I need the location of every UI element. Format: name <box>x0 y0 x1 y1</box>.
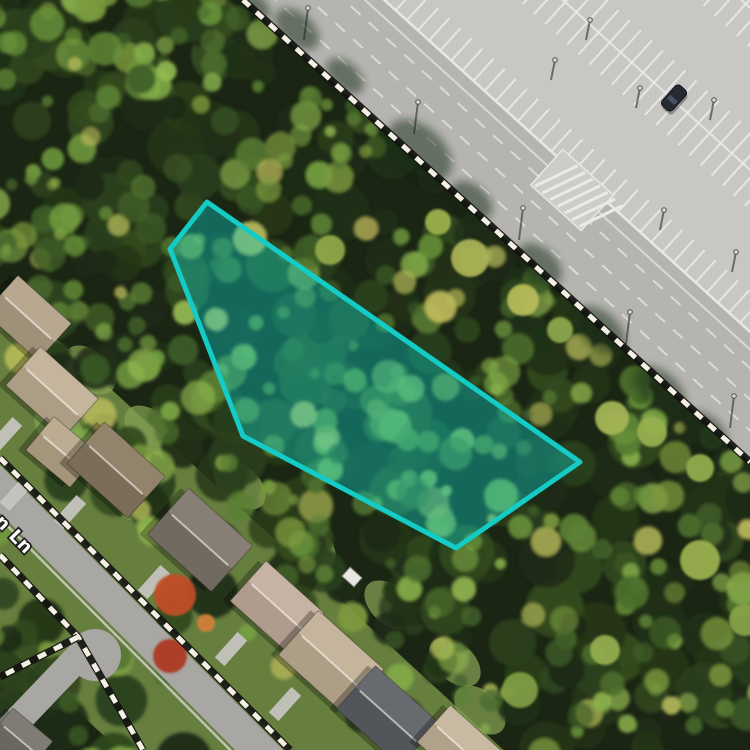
accent-tree <box>595 401 629 435</box>
accent-tree <box>315 235 345 265</box>
accent-tree <box>547 317 573 343</box>
accent-tree <box>637 417 667 447</box>
light-pole <box>521 206 526 211</box>
light-pole <box>306 6 311 11</box>
light-pole <box>588 18 593 23</box>
accent-tree <box>502 672 538 708</box>
aerial-imagery[interactable]: on Ln <box>0 0 750 750</box>
light-pole <box>734 250 739 255</box>
light-pole <box>712 98 717 103</box>
light-pole <box>732 394 737 399</box>
accent-tree <box>451 239 489 277</box>
accent-tree <box>590 635 620 665</box>
light-pole <box>553 58 558 63</box>
light-pole <box>662 208 667 213</box>
accent-tree <box>686 454 714 482</box>
light-pole <box>416 100 421 105</box>
map-viewport[interactable]: on Ln <box>0 0 750 750</box>
accent-tree <box>154 574 196 616</box>
accent-tree <box>680 540 720 580</box>
accent-tree <box>425 209 451 235</box>
accent-tree <box>507 284 539 316</box>
accent-tree <box>197 614 215 632</box>
light-pole <box>628 310 633 315</box>
light-pole <box>638 86 643 91</box>
